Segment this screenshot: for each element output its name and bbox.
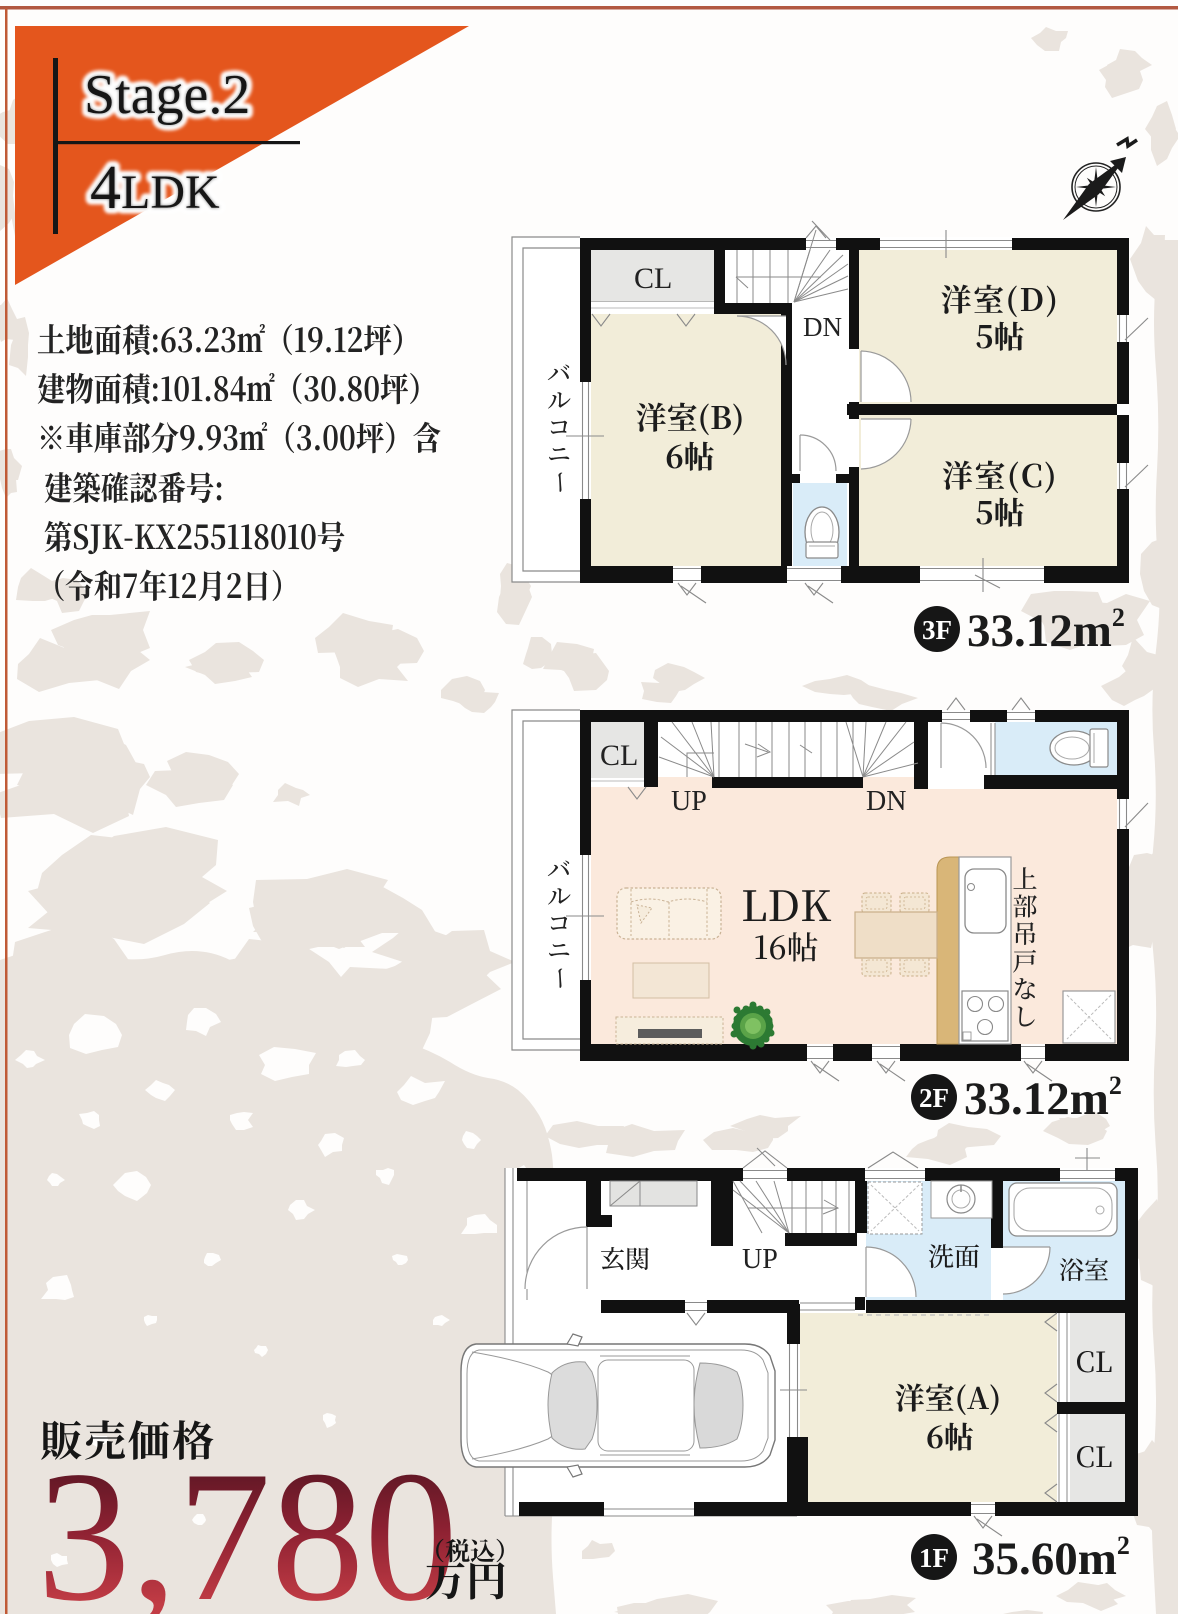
svg-text:1F: 1F bbox=[919, 1543, 949, 1573]
svg-text:33.12m2: 33.12m2 bbox=[967, 603, 1125, 657]
svg-text:3F: 3F bbox=[922, 615, 952, 645]
svg-text:33.12m2: 33.12m2 bbox=[964, 1071, 1122, 1125]
svg-text:DN: DN bbox=[803, 312, 842, 342]
svg-text:Stage.2: Stage.2 bbox=[84, 64, 250, 126]
svg-text:35.60m2: 35.60m2 bbox=[972, 1531, 1130, 1585]
svg-text:2F: 2F bbox=[919, 1083, 949, 1113]
svg-text:DN: DN bbox=[866, 786, 906, 817]
svg-text:UP: UP bbox=[671, 786, 707, 817]
svg-text:CL: CL bbox=[634, 262, 672, 295]
svg-text:UP: UP bbox=[742, 1244, 778, 1275]
svg-text:CL: CL bbox=[600, 739, 638, 772]
svg-text:3,780: 3,780 bbox=[37, 1433, 458, 1614]
